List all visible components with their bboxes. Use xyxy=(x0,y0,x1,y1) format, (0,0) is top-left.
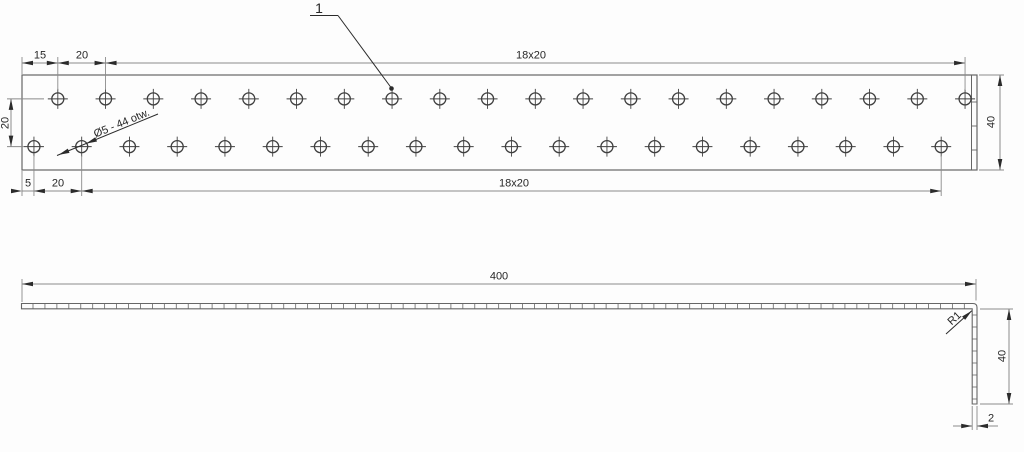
dim-label-20-left: 20 xyxy=(1,117,12,129)
dim-label-2: 2 xyxy=(988,414,994,425)
front-view-dimensions xyxy=(7,57,1004,196)
drawing-linework xyxy=(0,0,1024,452)
dim-label-20-bottom: 20 xyxy=(52,179,64,190)
dim-label-40-side: 40 xyxy=(998,350,1009,362)
dim-label-18x20-bottom: 18x20 xyxy=(499,179,529,190)
callout-leader xyxy=(310,16,394,91)
dim-label-15: 15 xyxy=(34,51,46,62)
dim-label-400: 400 xyxy=(490,272,508,283)
front-view-plate xyxy=(22,75,977,170)
dim-label-20-top: 20 xyxy=(76,51,88,62)
technical-drawing-page: 15 20 18x20 20 40 5 20 18x20 Ø5 - 44 otw… xyxy=(0,0,1024,452)
side-view-dimensions xyxy=(22,279,1013,430)
dim-label-40-right: 40 xyxy=(987,116,998,128)
item-callout-1: 1 xyxy=(315,1,323,15)
side-view-profile xyxy=(22,304,978,405)
dim-label-5: 5 xyxy=(25,179,31,190)
front-view-holes xyxy=(24,89,975,157)
dim-label-18x20-top: 18x20 xyxy=(516,51,546,62)
